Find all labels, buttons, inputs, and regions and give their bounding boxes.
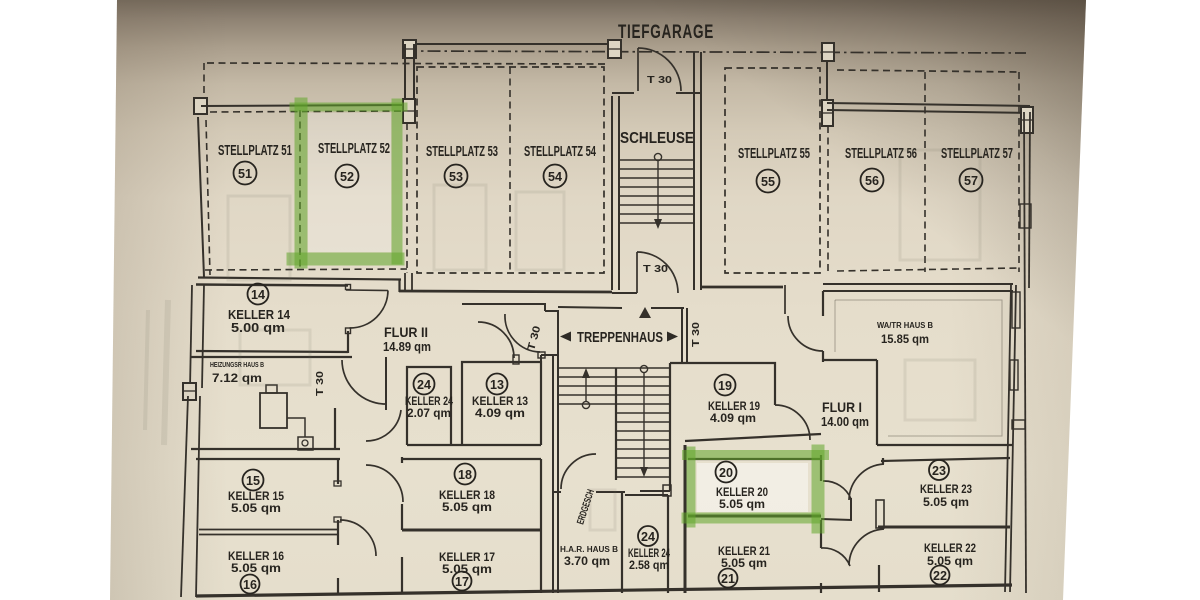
svg-text:51: 51: [238, 167, 252, 181]
svg-text:FLUR I: FLUR I: [822, 399, 862, 415]
svg-text:22: 22: [933, 569, 947, 583]
svg-text:5.05 qm: 5.05 qm: [231, 561, 281, 575]
svg-text:WA/TR HAUS B: WA/TR HAUS B: [877, 321, 933, 330]
svg-text:56: 56: [865, 174, 879, 188]
svg-text:KELLER 24: KELLER 24: [405, 396, 453, 408]
svg-text:14: 14: [251, 288, 265, 302]
svg-text:STELLPLATZ 55: STELLPLATZ 55: [738, 146, 810, 162]
svg-text:54: 54: [548, 170, 562, 184]
svg-text:KELLER 14: KELLER 14: [228, 308, 290, 322]
svg-text:STELLPLATZ 54: STELLPLATZ 54: [524, 144, 596, 160]
svg-text:14.00 qm: 14.00 qm: [821, 415, 869, 429]
svg-text:STELLPLATZ 51: STELLPLATZ 51: [218, 143, 292, 159]
svg-text:KELLER 22: KELLER 22: [924, 543, 976, 555]
svg-text:15: 15: [246, 474, 260, 488]
svg-text:T 30: T 30: [647, 74, 672, 86]
svg-text:HEIZUNGSR HAUS B: HEIZUNGSR HAUS B: [210, 360, 264, 369]
svg-text:FLUR II: FLUR II: [384, 324, 428, 340]
svg-text:55: 55: [761, 175, 775, 189]
svg-text:5.05 qm: 5.05 qm: [442, 500, 492, 514]
svg-text:KELLER 23: KELLER 23: [920, 484, 972, 496]
svg-text:17: 17: [455, 575, 469, 589]
svg-text:5.05 qm: 5.05 qm: [923, 497, 969, 509]
svg-text:2.07 qm: 2.07 qm: [407, 408, 451, 420]
svg-text:3.70 qm: 3.70 qm: [564, 556, 610, 568]
svg-text:5.05 qm: 5.05 qm: [231, 501, 281, 515]
svg-text:23: 23: [932, 464, 946, 478]
svg-text:57: 57: [964, 174, 978, 188]
svg-text:15.85 qm: 15.85 qm: [881, 334, 929, 346]
svg-text:4.09 qm: 4.09 qm: [710, 411, 756, 425]
svg-text:STELLPLATZ 56: STELLPLATZ 56: [845, 146, 917, 162]
svg-text:STELLPLATZ 53: STELLPLATZ 53: [426, 144, 498, 160]
svg-text:2.58 qm: 2.58 qm: [629, 560, 669, 572]
svg-text:7.12 qm: 7.12 qm: [212, 371, 262, 385]
svg-text:T 30: T 30: [690, 322, 702, 347]
svg-text:TIEFGARAGE: TIEFGARAGE: [618, 22, 714, 43]
svg-text:53: 53: [449, 170, 463, 184]
svg-text:52: 52: [340, 170, 354, 184]
svg-text:19: 19: [718, 379, 732, 393]
svg-text:T 30: T 30: [314, 371, 326, 396]
svg-text:KELLER 24: KELLER 24: [628, 548, 670, 560]
svg-text:14.89 qm: 14.89 qm: [383, 340, 431, 354]
svg-text:5.05 qm: 5.05 qm: [719, 497, 765, 511]
svg-text:STELLPLATZ 52: STELLPLATZ 52: [318, 141, 390, 157]
svg-text:TREPPENHAUS: TREPPENHAUS: [577, 329, 663, 346]
svg-text:4.09 qm: 4.09 qm: [475, 406, 525, 420]
svg-text:21: 21: [721, 572, 735, 586]
svg-text:20: 20: [719, 466, 733, 480]
svg-text:24: 24: [641, 530, 655, 544]
svg-text:STELLPLATZ 57: STELLPLATZ 57: [941, 146, 1013, 162]
svg-text:T 30: T 30: [643, 263, 668, 275]
svg-text:H.A.R. HAUS B: H.A.R. HAUS B: [560, 545, 618, 554]
svg-text:18: 18: [458, 468, 472, 482]
svg-text:16: 16: [243, 578, 257, 592]
svg-text:5.05 qm: 5.05 qm: [927, 556, 973, 568]
svg-text:13: 13: [490, 378, 504, 392]
svg-text:SCHLEUSE: SCHLEUSE: [620, 130, 694, 147]
svg-text:24: 24: [417, 378, 431, 392]
